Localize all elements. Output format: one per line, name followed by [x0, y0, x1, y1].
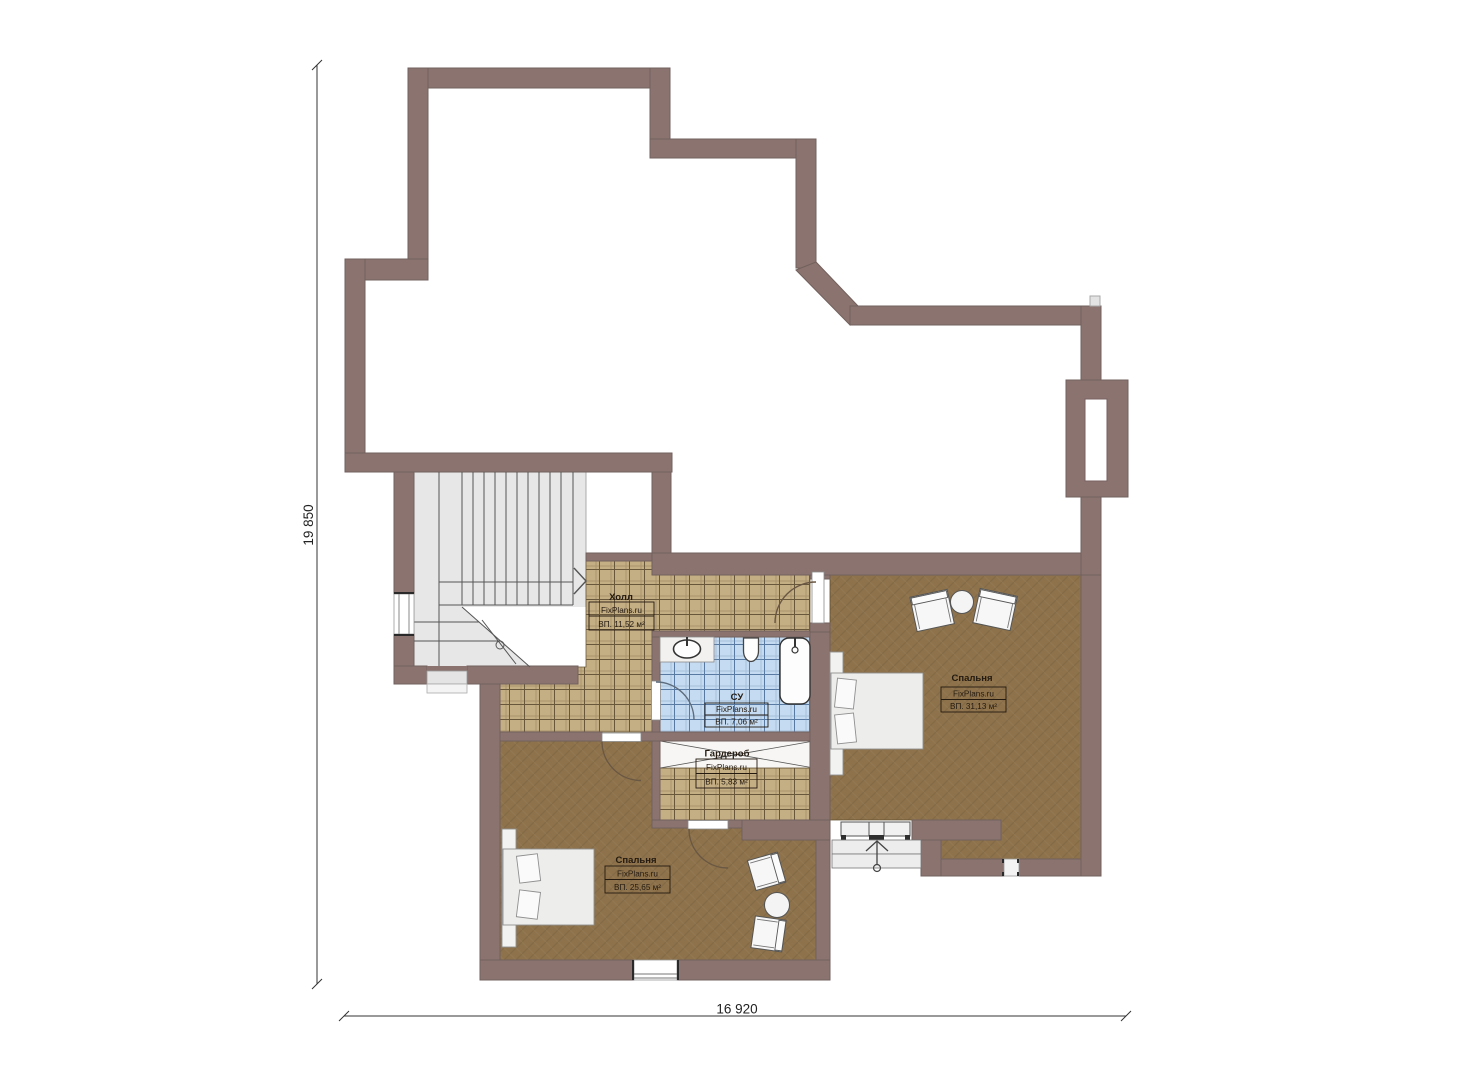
- svg-text:Холл: Холл: [609, 592, 633, 603]
- svg-text:Спальня: Спальня: [615, 855, 656, 866]
- svg-text:FixPlans.ru: FixPlans.ru: [953, 690, 994, 699]
- svg-text:ВП. 5,83 м²: ВП. 5,83 м²: [705, 778, 748, 787]
- svg-text:FixPlans.ru: FixPlans.ru: [617, 870, 658, 879]
- svg-text:ВП. 11,52 м²: ВП. 11,52 м²: [598, 620, 645, 629]
- svg-text:16 920: 16 920: [716, 1002, 757, 1017]
- svg-text:FixPlans.ru: FixPlans.ru: [601, 606, 642, 615]
- svg-text:СУ: СУ: [731, 692, 744, 703]
- svg-text:ВП. 31,13 м²: ВП. 31,13 м²: [950, 702, 997, 711]
- svg-text:FixPlans.ru: FixPlans.ru: [716, 705, 757, 714]
- svg-text:ВП. 7,06 м²: ВП. 7,06 м²: [715, 718, 758, 727]
- svg-text:19 850: 19 850: [301, 504, 316, 545]
- svg-text:Спальня: Спальня: [951, 673, 992, 684]
- svg-text:ВП. 25,65 м²: ВП. 25,65 м²: [614, 883, 661, 892]
- svg-text:FixPlans.ru: FixPlans.ru: [706, 763, 747, 772]
- svg-text:Гардероб: Гардероб: [705, 749, 750, 760]
